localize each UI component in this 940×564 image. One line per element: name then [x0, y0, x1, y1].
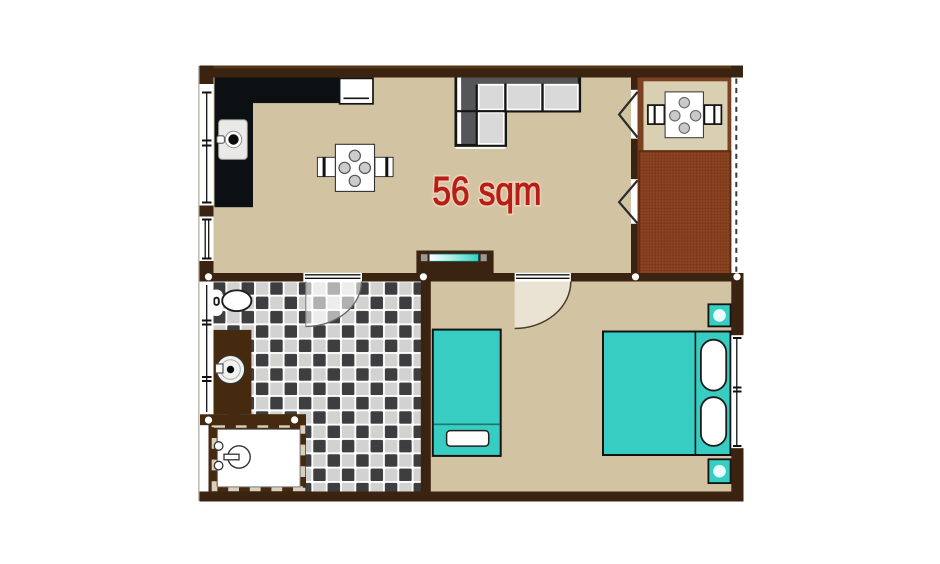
- svg-text:56 sqm: 56 sqm: [433, 170, 542, 214]
